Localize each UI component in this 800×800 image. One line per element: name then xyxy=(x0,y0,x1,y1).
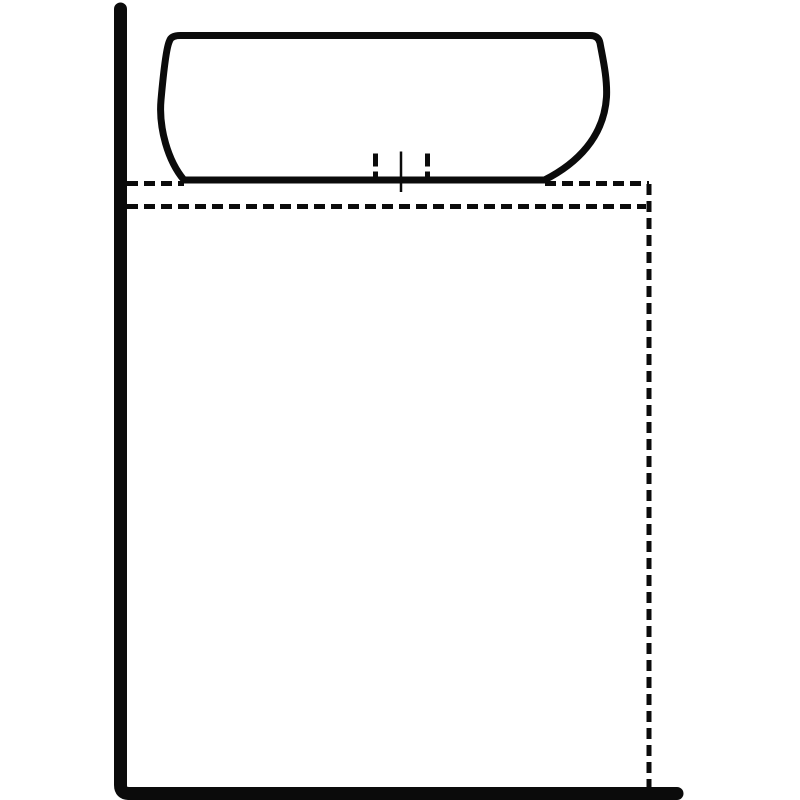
sink-basin-outline xyxy=(161,36,607,181)
sink-installation-diagram xyxy=(0,0,800,800)
diagram-canvas xyxy=(0,0,800,800)
